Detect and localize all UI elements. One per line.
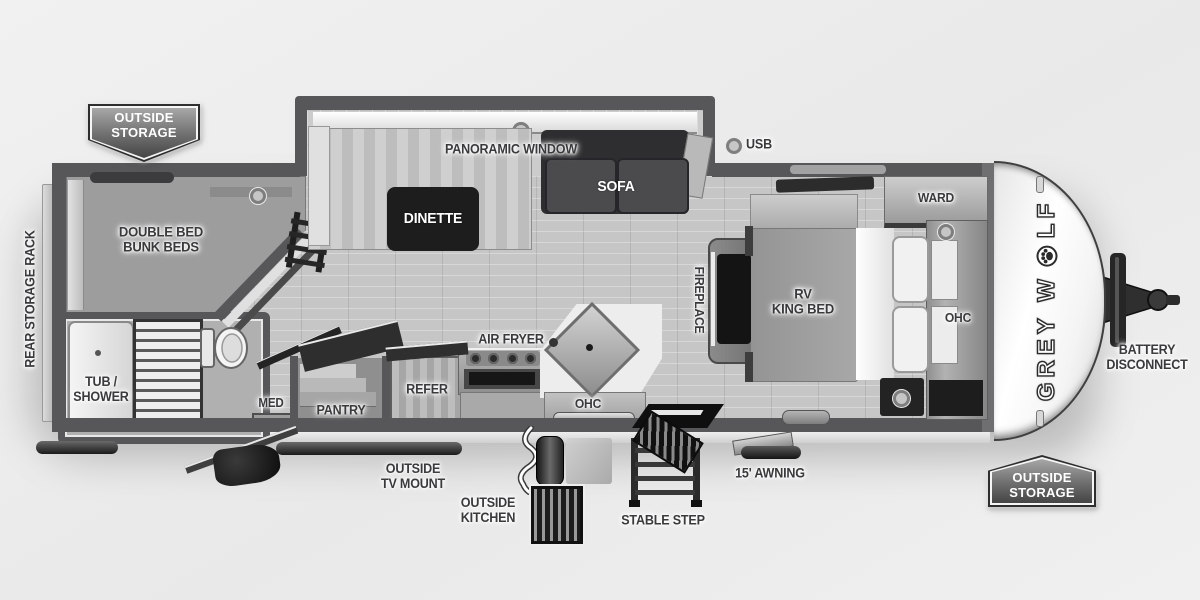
fireplace-edge xyxy=(711,252,715,346)
tub-drain-icon xyxy=(95,350,101,356)
label-battery-line2: DISCONNECT xyxy=(1106,358,1187,373)
bunk-window xyxy=(90,172,174,183)
label-sofa: SOFA xyxy=(597,179,634,196)
pillow xyxy=(892,306,929,373)
bathtub xyxy=(68,321,134,425)
shower-door xyxy=(133,319,203,429)
brand-suffix: LF xyxy=(1033,199,1061,238)
awning-roller xyxy=(741,446,801,459)
propane-tank xyxy=(536,436,564,486)
label-usb: USB xyxy=(746,138,772,153)
pantry-wall-left xyxy=(290,356,298,422)
label-outside-tv-mount: OUTSIDE TV MOUNT xyxy=(381,462,445,492)
dinette-bench-end xyxy=(308,126,330,246)
pillow xyxy=(892,236,929,303)
burner-row xyxy=(466,351,540,366)
tv-mount-rail xyxy=(276,442,462,455)
badge-line1: OUTSIDE xyxy=(114,111,173,126)
label-ohc-kitchen: OHC xyxy=(575,397,601,411)
label-awning: 15' AWNING xyxy=(735,467,805,482)
label-stable-step: STABLE STEP xyxy=(621,514,705,529)
label-outside-kitchen-line1: OUTSIDE xyxy=(461,496,516,511)
badge-face: OUTSIDE STORAGE xyxy=(92,108,196,158)
outside-storage-badge-rear: OUTSIDE STORAGE xyxy=(88,104,200,162)
label-battery-line1: BATTERY xyxy=(1106,343,1187,358)
label-air-fryer: AIR FRYER xyxy=(478,333,544,348)
label-rv-king-bed: RV KING BED xyxy=(772,287,834,318)
burner-icon xyxy=(488,353,499,364)
label-bunk-beds: DOUBLE BED BUNK BEDS xyxy=(119,225,203,256)
fireplace-screen xyxy=(717,254,751,344)
label-bunk-line2: BUNK BEDS xyxy=(119,240,203,255)
label-panoramic-window: PANORAMIC WINDOW xyxy=(445,143,577,158)
griddle-icon xyxy=(531,486,583,544)
label-tub-shower: TUB / SHOWER xyxy=(73,375,128,405)
ohc-shelf xyxy=(931,240,958,300)
label-ohc-bedroom: OHC xyxy=(945,311,971,325)
label-tub-line1: TUB / xyxy=(73,375,128,390)
paw-icon xyxy=(1036,245,1058,267)
label-battery-disconnect: BATTERY DISCONNECT xyxy=(1106,343,1187,373)
label-rear-storage-rack: REAR STORAGE RACK xyxy=(24,230,39,368)
label-dinette: DINETTE xyxy=(404,211,462,228)
label-outside-kitchen: OUTSIDE KITCHEN xyxy=(461,496,516,526)
label-pantry: PANTRY xyxy=(316,404,365,419)
burner-icon xyxy=(525,353,536,364)
cap-slot xyxy=(1036,410,1044,427)
outside-kitchen-box xyxy=(566,438,612,484)
faucet-icon xyxy=(549,338,558,347)
badge-line2: STORAGE xyxy=(111,126,176,141)
label-tv-mount-line2: TV MOUNT xyxy=(381,477,445,492)
label-fireplace: FIREPLACE xyxy=(692,267,706,334)
entry-step-pad xyxy=(212,442,283,489)
label-king-line2: KING BED xyxy=(772,302,834,317)
bedroom-window xyxy=(790,165,886,174)
bunk-headboard xyxy=(68,180,84,310)
sink-drain-icon xyxy=(586,344,593,351)
toilet-icon xyxy=(200,322,254,374)
outside-storage-badge-front: OUTSIDE STORAGE xyxy=(988,455,1096,507)
badge-line1: OUTSIDE xyxy=(1012,471,1071,486)
pantry-wall-right xyxy=(382,356,390,422)
cap-slot xyxy=(1036,176,1044,193)
wall-top-left xyxy=(52,163,300,177)
bed-headboard-cabinet xyxy=(750,194,858,230)
label-ward: WARD xyxy=(918,191,954,205)
bed-bracket-top xyxy=(745,226,753,256)
floorplan-canvas: GREY W LF xyxy=(0,0,1200,600)
badge-line2: STORAGE xyxy=(1009,486,1074,501)
label-outside-kitchen-line2: KITCHEN xyxy=(461,511,516,526)
label-med: MED xyxy=(258,397,283,411)
burner-icon xyxy=(470,353,481,364)
usb-port-icon xyxy=(726,138,742,154)
ohc-dark-base xyxy=(929,380,983,416)
bedroom-light-icon xyxy=(938,224,954,240)
bed-sheet-runner xyxy=(856,228,894,380)
oven-window xyxy=(469,372,535,385)
water-heater xyxy=(782,410,830,425)
brand-logo: GREY W LF xyxy=(1033,199,1061,401)
pantry-shelf-2 xyxy=(300,378,366,393)
nightstand-light-icon xyxy=(893,390,910,407)
bed-bracket-bottom xyxy=(745,352,753,382)
label-refer: REFER xyxy=(406,383,448,398)
burner-icon xyxy=(507,353,518,364)
wall-rear xyxy=(52,163,66,432)
label-tv-mount-line1: OUTSIDE xyxy=(381,462,445,477)
label-tub-line2: SHOWER xyxy=(73,390,128,405)
bunk-light-icon xyxy=(250,188,266,204)
tv-mount-rail xyxy=(36,441,118,454)
brand-prefix: GREY W xyxy=(1033,274,1061,401)
